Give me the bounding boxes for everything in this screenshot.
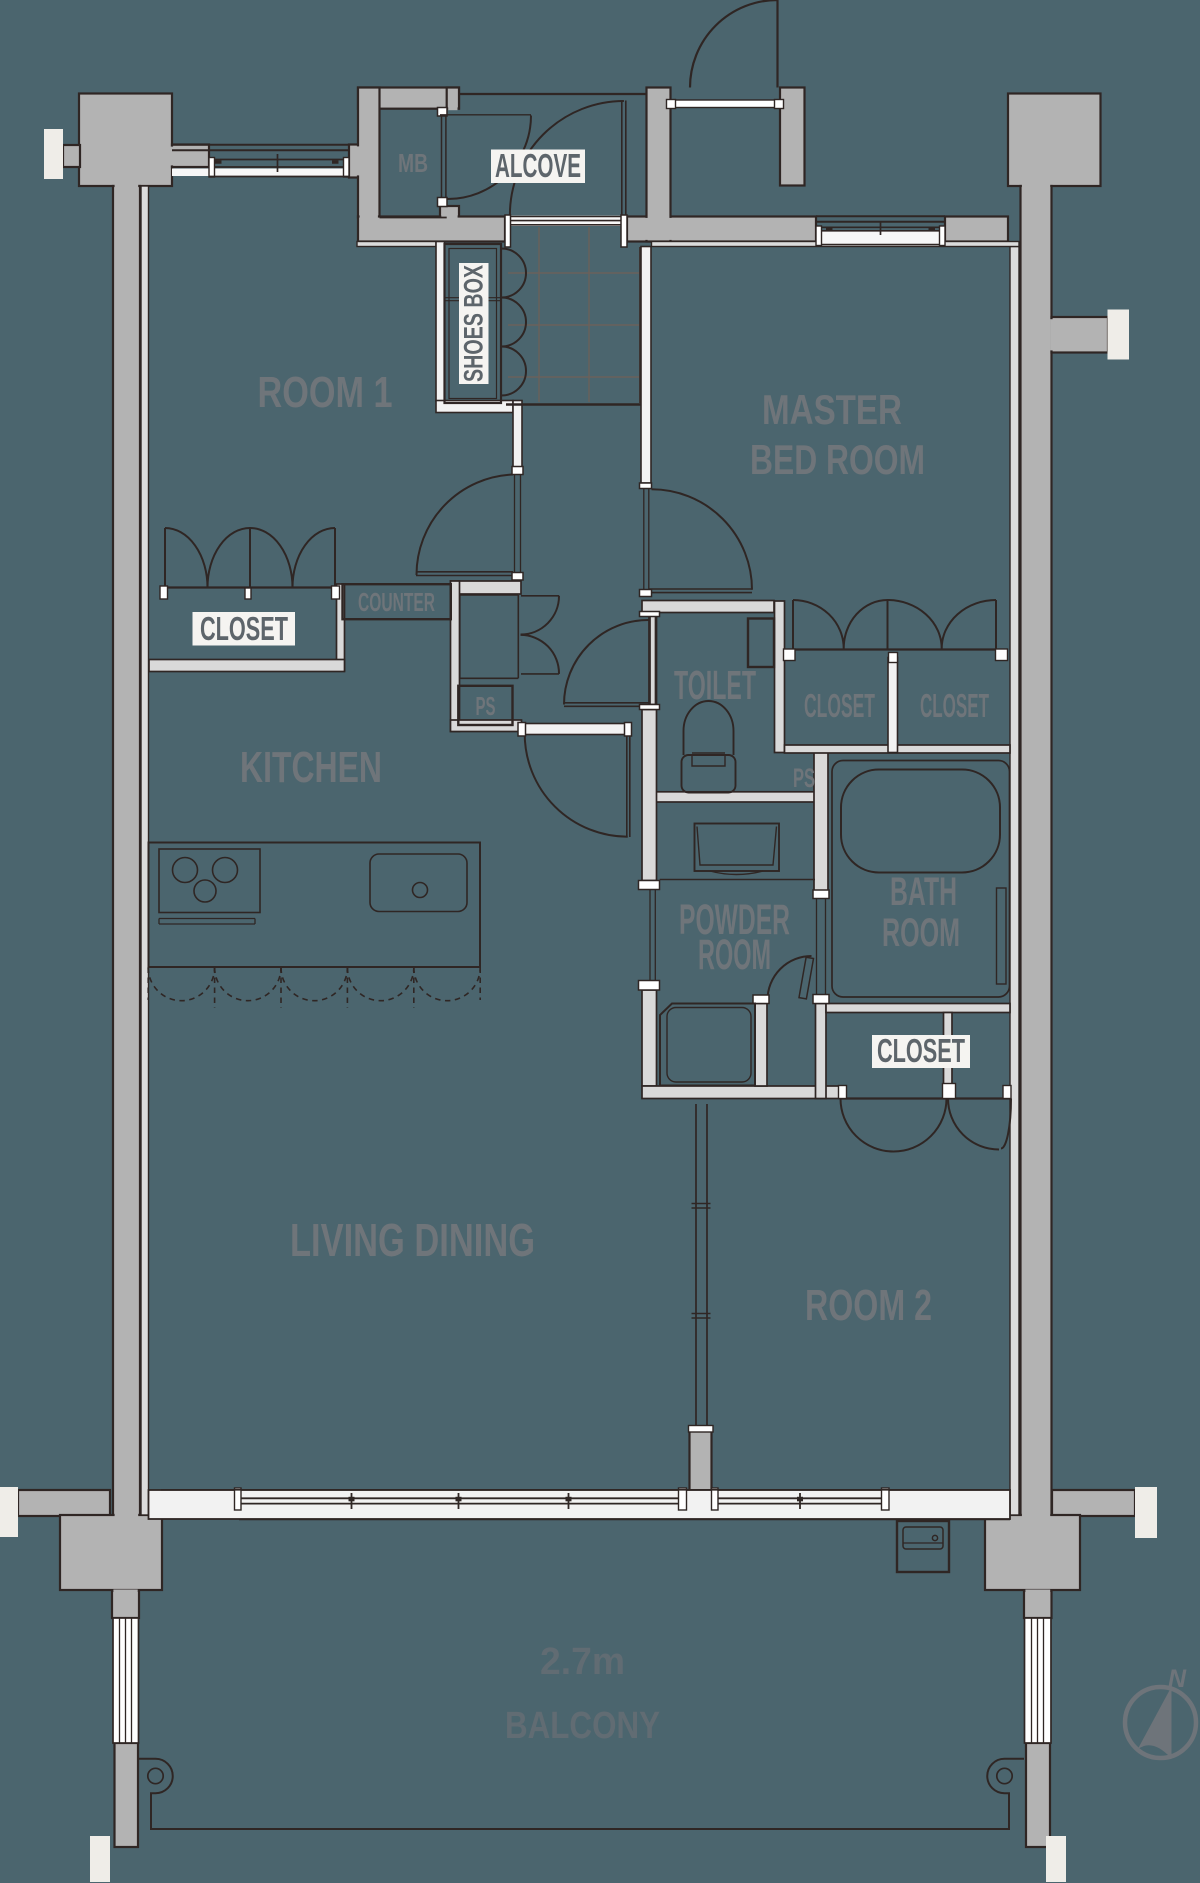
svg-text:CLOSET: CLOSET: [804, 687, 875, 724]
svg-text:CLOSET: CLOSET: [200, 610, 288, 647]
svg-text:2.7m: 2.7m: [540, 1641, 625, 1683]
svg-text:ROOM 1: ROOM 1: [258, 368, 393, 417]
svg-text:PS: PS: [793, 763, 815, 793]
svg-text:MASTER: MASTER: [762, 386, 902, 433]
svg-text:PS: PS: [476, 691, 496, 721]
svg-text:TOILET: TOILET: [674, 662, 756, 708]
svg-text:N: N: [1168, 1665, 1187, 1693]
svg-text:CLOSET: CLOSET: [920, 687, 989, 724]
svg-text:SHOES BOX: SHOES BOX: [459, 265, 489, 382]
svg-text:ALCOVE: ALCOVE: [495, 147, 581, 184]
svg-text:BALCONY: BALCONY: [505, 1705, 660, 1747]
svg-text:BED ROOM: BED ROOM: [750, 436, 925, 483]
svg-text:MB: MB: [398, 148, 428, 178]
svg-text:LIVING DINING: LIVING DINING: [290, 1214, 535, 1266]
svg-text:ROOM: ROOM: [882, 911, 960, 955]
svg-text:COUNTER: COUNTER: [358, 587, 435, 617]
svg-text:CLOSET: CLOSET: [877, 1032, 965, 1069]
svg-text:BATH: BATH: [890, 870, 957, 914]
svg-text:ROOM 2: ROOM 2: [805, 1281, 932, 1330]
svg-text:KITCHEN: KITCHEN: [240, 743, 382, 792]
svg-text:ROOM: ROOM: [698, 931, 771, 979]
